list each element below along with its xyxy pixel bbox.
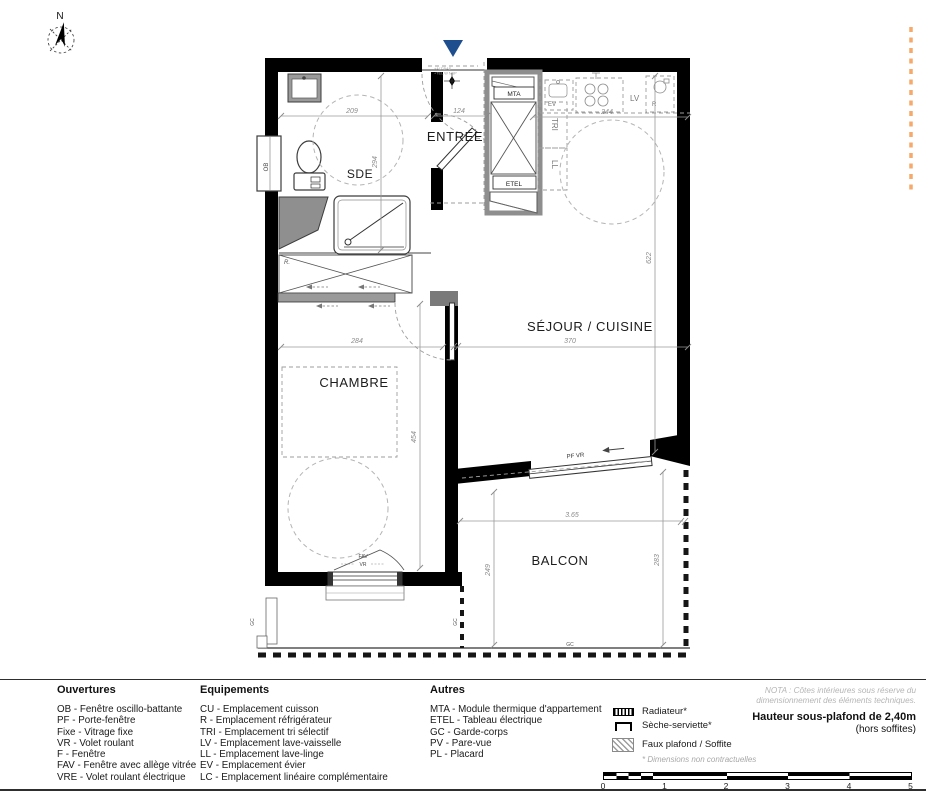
dim-284: 284 bbox=[350, 338, 363, 345]
scale-tick-1: 1 bbox=[655, 781, 675, 791]
ob-window-label: OB bbox=[264, 163, 270, 172]
compass-north-label: N bbox=[56, 11, 63, 22]
dim-283: 283 bbox=[654, 554, 661, 567]
scale-tick-3: 3 bbox=[778, 781, 798, 791]
r-label: R bbox=[652, 102, 657, 108]
false-ceiling-hatch-icon bbox=[612, 738, 634, 752]
nota-line2: dimensionnement des éléments techniques. bbox=[660, 696, 916, 706]
kitchen-counter: EV LV R bbox=[540, 73, 690, 113]
legend-footnote: * Dimensions non contractuelles bbox=[642, 755, 756, 764]
floor-plan-drawing: N +ALT.BAS +TEL.W NSP bbox=[0, 0, 926, 680]
slide-direction-arrow-icon bbox=[602, 447, 610, 454]
legend-title-ouvertures: Ouvertures bbox=[57, 684, 116, 696]
legend-title-autres: Autres bbox=[430, 684, 465, 696]
technical-cabinet: MTA ETEL bbox=[487, 72, 540, 213]
vr-label: VR bbox=[360, 562, 367, 568]
legend-item: OB - Fenêtre oscillo-battante bbox=[57, 704, 196, 715]
legend-item: FAV - Fenêtre avec allège vitrée bbox=[57, 760, 196, 771]
legend-item: PF - Porte-fenêtre bbox=[57, 715, 196, 726]
scale-bar-row2 bbox=[604, 776, 911, 779]
gc-label-left: GC bbox=[250, 618, 256, 626]
room-label-sejour: SÉJOUR / CUISINE bbox=[527, 319, 653, 334]
dim-365: 3.65 bbox=[565, 512, 579, 519]
sde-fixtures: OB R. bbox=[257, 74, 477, 309]
pf-vr-label: PF VR bbox=[566, 452, 585, 460]
fav-label: FAV bbox=[358, 554, 368, 560]
legend-item: LL - Emplacement lave-linge bbox=[200, 749, 388, 760]
vanity-counter bbox=[279, 197, 328, 249]
dim-209: 209 bbox=[345, 108, 358, 115]
radiator-icon bbox=[613, 708, 634, 716]
legend-list-autres: MTA - Module thermique d'appartement ETE… bbox=[430, 704, 602, 760]
floor-plan-page: N +ALT.BAS +TEL.W NSP bbox=[0, 0, 926, 800]
scale-bar bbox=[603, 772, 912, 780]
g c-label-rail: GC bbox=[453, 618, 459, 626]
room-label-balcon: BALCON bbox=[531, 553, 588, 568]
dim-622: 622 bbox=[646, 252, 653, 264]
ceiling-height-note: Hauteur sous-plafond de 2,40m bbox=[660, 711, 916, 723]
nota-line1: NOTA : Côtes intérieures sous réserve du bbox=[660, 686, 916, 696]
gc-label-bottom: GC bbox=[566, 642, 574, 648]
legend-title-equipements: Equipements bbox=[200, 684, 269, 696]
towel-dryer-icon bbox=[615, 722, 632, 731]
legend-item: LV - Emplacement lave-vaisselle bbox=[200, 738, 388, 749]
dim-454: 454 bbox=[411, 431, 418, 443]
legend-top-divider bbox=[0, 679, 926, 680]
legend-item: VR - Volet roulant bbox=[57, 738, 196, 749]
lv-label: LV bbox=[630, 94, 640, 103]
chambre-partition-wall bbox=[278, 293, 395, 302]
legend-item: F - Fenêtre bbox=[57, 749, 196, 760]
room-label-chambre: CHAMBRE bbox=[319, 375, 388, 390]
legend-item: TRI - Emplacement tri sélectif bbox=[200, 727, 388, 738]
legend-item: MTA - Module thermique d'appartement bbox=[430, 704, 602, 715]
dim-370: 370 bbox=[564, 338, 576, 345]
closet-label: R. bbox=[284, 260, 290, 266]
scale-tick-4: 4 bbox=[839, 781, 859, 791]
legend-list-equipements: CU - Emplacement cuisson R - Emplacement… bbox=[200, 704, 388, 783]
room-label-entree: ENTRÉE bbox=[427, 129, 483, 144]
scale-tick-2: 2 bbox=[716, 781, 736, 791]
chambre-door-swing bbox=[395, 303, 452, 360]
entry-note-line2: +TEL.W NSP bbox=[434, 72, 457, 76]
fav-window: FAV VR bbox=[326, 550, 404, 600]
legend-faux-plafond-label: Faux plafond / Soffite bbox=[642, 739, 732, 750]
sejour-turning-circle bbox=[560, 120, 664, 224]
ev-label: EV bbox=[548, 102, 556, 108]
legend-item: EV - Emplacement évier bbox=[200, 760, 388, 771]
shower-icon bbox=[334, 196, 410, 254]
sink-icon bbox=[549, 84, 567, 97]
legend-item: VRE - Volet roulant électrique bbox=[57, 772, 196, 783]
legend-item: PL - Placard bbox=[430, 749, 602, 760]
mta-label: MTA bbox=[507, 91, 521, 98]
entrance-arrow-icon bbox=[443, 40, 463, 57]
entry-note-line1: +ALT.BAS bbox=[434, 67, 452, 71]
legend-item: R - Emplacement réfrigérateur bbox=[200, 715, 388, 726]
ll-label: LL bbox=[550, 160, 559, 169]
cu-box bbox=[576, 78, 623, 112]
dim-244: 244 bbox=[600, 109, 613, 116]
legend-item: PV - Pare-vue bbox=[430, 738, 602, 749]
washbasin-icon bbox=[288, 74, 321, 102]
etel-label: ETEL bbox=[506, 181, 523, 188]
legend-item: LC - Emplacement linéaire complémentaire bbox=[200, 772, 388, 783]
ceiling-height-subnote: (hors soffites) bbox=[660, 724, 916, 735]
dim-249: 249 bbox=[485, 564, 492, 577]
legend-item: ETEL - Tableau électrique bbox=[430, 715, 602, 726]
legend-item: CU - Emplacement cuisson bbox=[200, 704, 388, 715]
chambre-turning-circle bbox=[288, 458, 388, 558]
fridge-icon bbox=[654, 79, 669, 93]
legend-item: GC - Garde-corps bbox=[430, 727, 602, 738]
legend-item: Fixe - Vitrage fixe bbox=[57, 727, 196, 738]
fridge-box bbox=[646, 76, 674, 112]
tri-label: TRI bbox=[550, 118, 559, 131]
dim-124: 124 bbox=[453, 108, 465, 115]
pf-vr-sliding-door: PF VR bbox=[527, 443, 652, 479]
north-compass-icon: N bbox=[48, 11, 74, 53]
room-label-sde: SDE bbox=[347, 167, 373, 181]
scale-tick-0: 0 bbox=[593, 781, 613, 791]
chambre-door-leaf bbox=[450, 303, 455, 360]
legend-list-ouvertures: OB - Fenêtre oscillo-battante PF - Porte… bbox=[57, 704, 196, 783]
scale-tick-5: 5 bbox=[901, 781, 921, 791]
balcony-railings: GC GC GC bbox=[250, 470, 690, 655]
